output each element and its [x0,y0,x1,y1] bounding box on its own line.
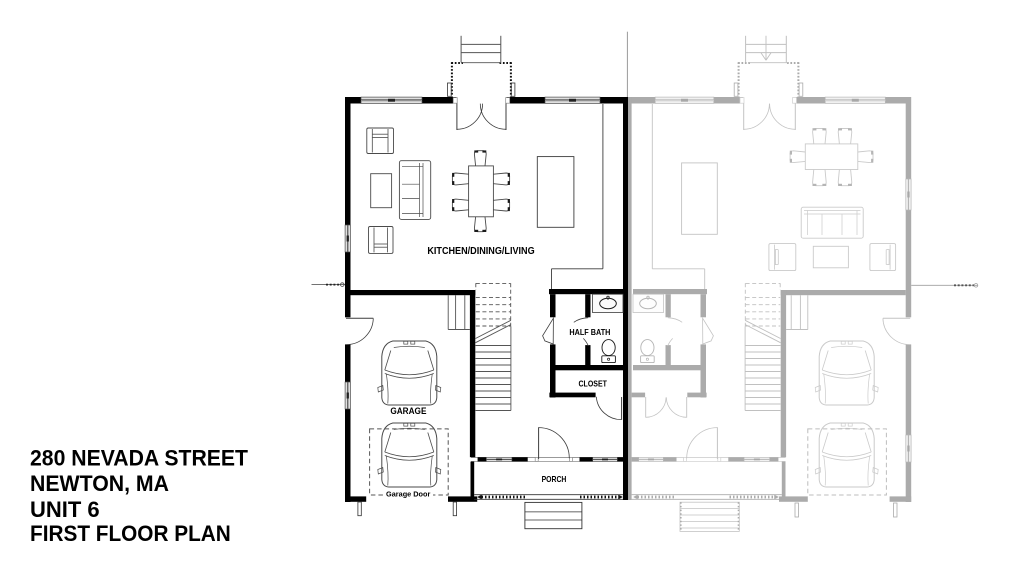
svg-text:GARAGE: GARAGE [390,406,427,417]
svg-text:PORCH: PORCH [542,474,567,484]
svg-text:NEWTON, MA: NEWTON, MA [30,471,169,496]
svg-text:280 NEVADA STREET: 280 NEVADA STREET [30,445,249,470]
svg-text:UNIT 6: UNIT 6 [30,497,100,522]
svg-text:KITCHEN/DINING/LIVING: KITCHEN/DINING/LIVING [427,246,534,257]
svg-text:HALF BATH: HALF BATH [569,328,610,337]
svg-text:CLOSET: CLOSET [579,380,608,389]
svg-text:Garage Door: Garage Door [386,489,430,498]
svg-text:FIRST FLOOR PLAN: FIRST FLOOR PLAN [30,521,231,546]
